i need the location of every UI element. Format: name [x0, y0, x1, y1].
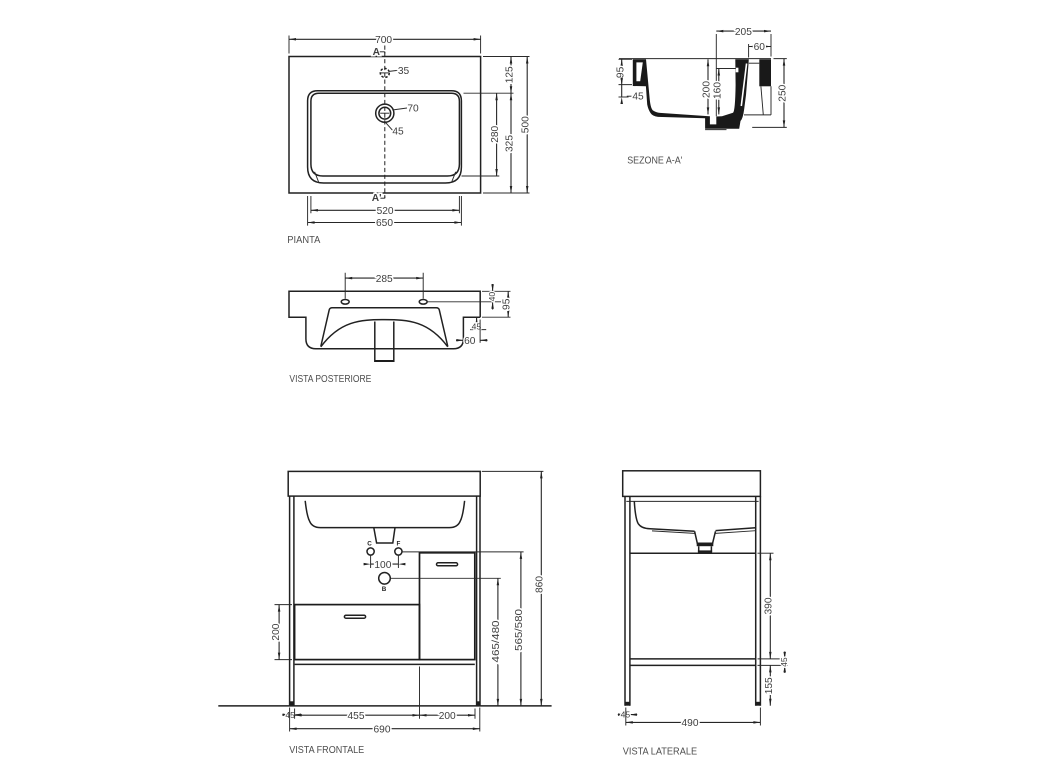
svg-text:35: 35 — [398, 66, 410, 77]
svg-text:285: 285 — [376, 274, 393, 285]
svg-text:490: 490 — [682, 718, 699, 729]
svg-text:520: 520 — [377, 206, 394, 217]
svg-text:A': A' — [372, 193, 382, 204]
svg-text:VISTA FRONTALE: VISTA FRONTALE — [289, 745, 364, 756]
svg-text:45: 45 — [779, 657, 789, 667]
svg-text:200: 200 — [439, 711, 456, 722]
svg-text:280: 280 — [490, 125, 501, 142]
svg-text:SEZONE A-A': SEZONE A-A' — [627, 155, 682, 166]
svg-text:700: 700 — [375, 35, 392, 46]
svg-text:565/580: 565/580 — [514, 609, 525, 651]
svg-text:C: C — [367, 540, 372, 547]
svg-text:95: 95 — [502, 298, 513, 310]
svg-text:100: 100 — [374, 560, 391, 571]
svg-text:A: A — [373, 47, 381, 58]
svg-text:125: 125 — [504, 66, 515, 83]
svg-text:455: 455 — [348, 711, 365, 722]
svg-text:95: 95 — [615, 66, 626, 78]
svg-text:205: 205 — [735, 27, 752, 38]
svg-text:VISTA LATERALE: VISTA LATERALE — [623, 747, 697, 758]
svg-text:70: 70 — [407, 103, 419, 114]
svg-text:325: 325 — [504, 135, 515, 152]
svg-text:650: 650 — [376, 218, 393, 229]
svg-text:60: 60 — [464, 336, 476, 347]
svg-text:860: 860 — [535, 576, 546, 593]
svg-text:40: 40 — [487, 292, 497, 302]
svg-text:690: 690 — [374, 724, 391, 735]
svg-text:45: 45 — [392, 127, 404, 138]
svg-text:160: 160 — [713, 82, 724, 99]
svg-text:F: F — [397, 541, 401, 548]
svg-text:45: 45 — [285, 710, 295, 720]
svg-text:200: 200 — [271, 623, 282, 640]
svg-text:465/480: 465/480 — [491, 620, 502, 662]
svg-text:B: B — [382, 586, 387, 593]
svg-text:500: 500 — [520, 116, 531, 133]
svg-text:PIANTA: PIANTA — [287, 235, 320, 246]
svg-text:155: 155 — [764, 677, 775, 694]
svg-text:VISTA POSTERIORE: VISTA POSTERIORE — [289, 374, 371, 385]
svg-text:60: 60 — [754, 42, 766, 53]
svg-text:45: 45 — [632, 91, 644, 102]
svg-text:200: 200 — [702, 81, 713, 98]
svg-text:250: 250 — [777, 84, 788, 101]
svg-text:390: 390 — [764, 597, 775, 614]
